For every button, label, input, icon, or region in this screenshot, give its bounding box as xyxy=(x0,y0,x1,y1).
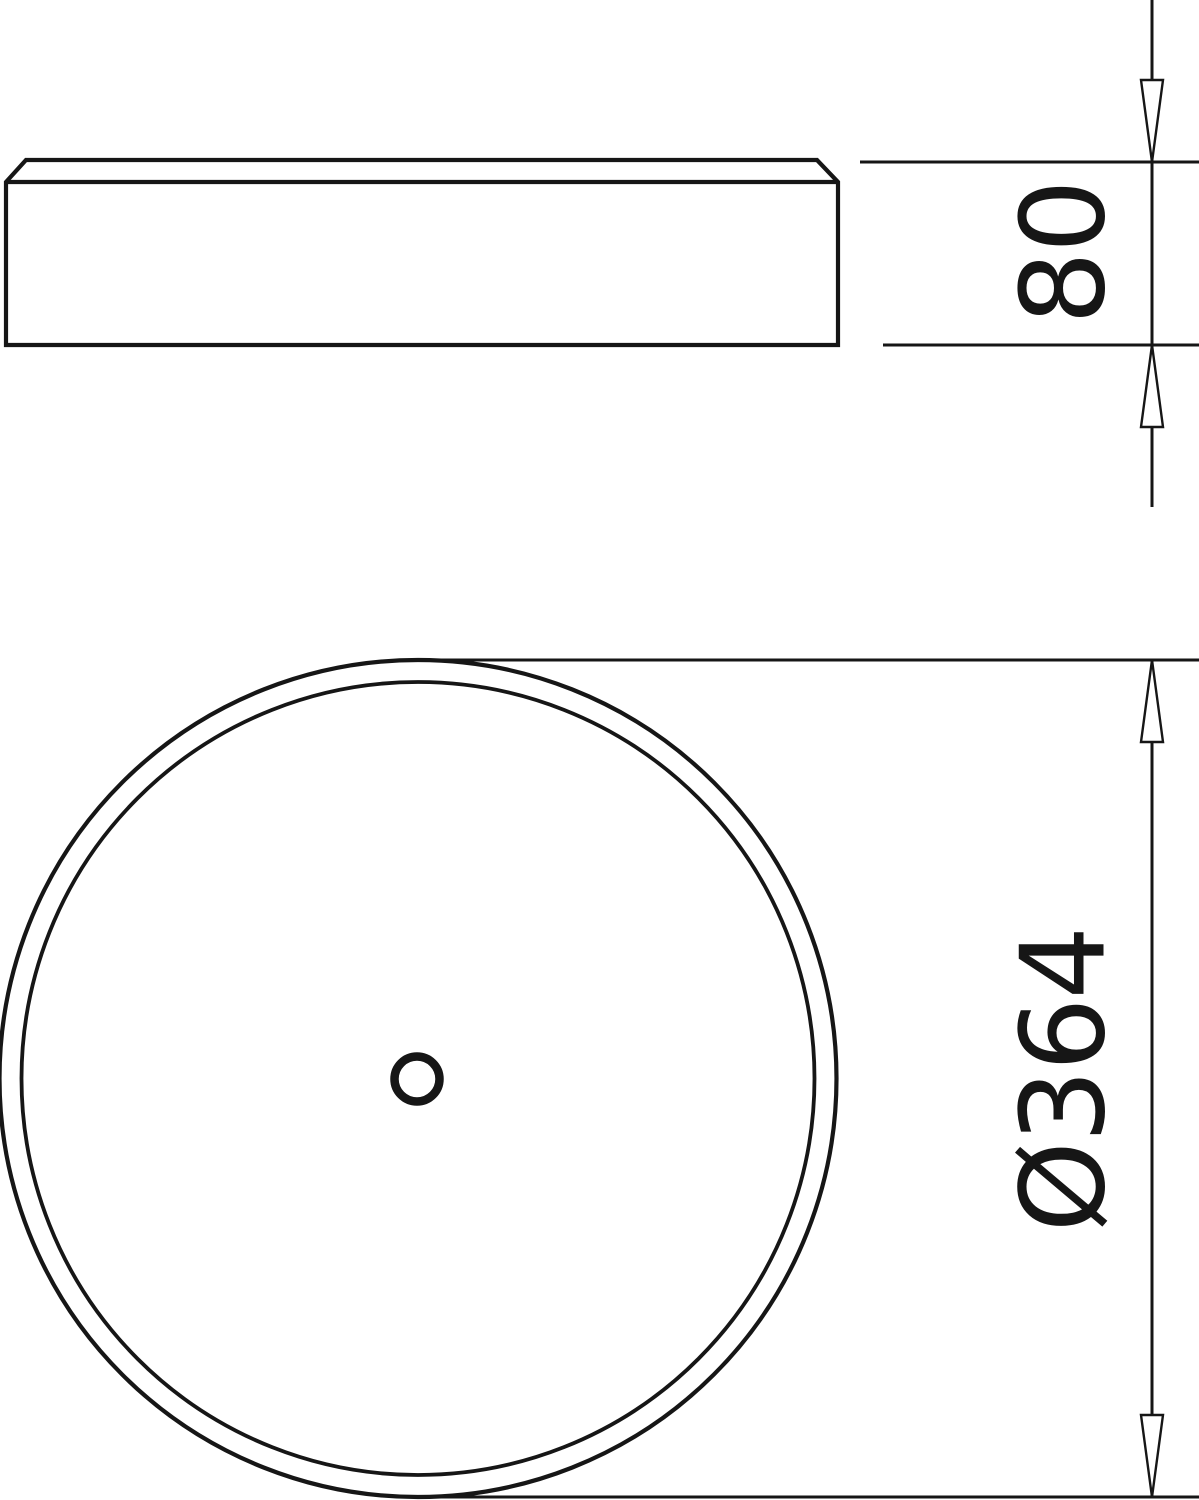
diameter-arrowhead-bottom-icon xyxy=(1141,1415,1163,1497)
technical-drawing-page: 80 Ø364 xyxy=(0,0,1199,1500)
diameter-arrowhead-top-icon xyxy=(1141,660,1163,742)
height-dimension-text: 80 xyxy=(997,181,1132,325)
height-arrowhead-top-icon xyxy=(1141,80,1163,162)
side-view xyxy=(6,160,838,345)
height-arrowhead-bottom-icon xyxy=(1141,345,1163,427)
technical-drawing-canvas: 80 Ø364 xyxy=(0,0,1199,1500)
inner-rim-circle xyxy=(22,682,815,1475)
center-hole-circle xyxy=(395,1057,440,1102)
side-view-outline xyxy=(6,160,838,345)
diameter-dimension: Ø364 xyxy=(418,660,1199,1497)
diameter-dimension-text: Ø364 xyxy=(997,928,1132,1233)
top-view xyxy=(0,660,837,1497)
height-dimension: 80 xyxy=(860,0,1199,507)
outer-diameter-circle xyxy=(0,660,837,1497)
